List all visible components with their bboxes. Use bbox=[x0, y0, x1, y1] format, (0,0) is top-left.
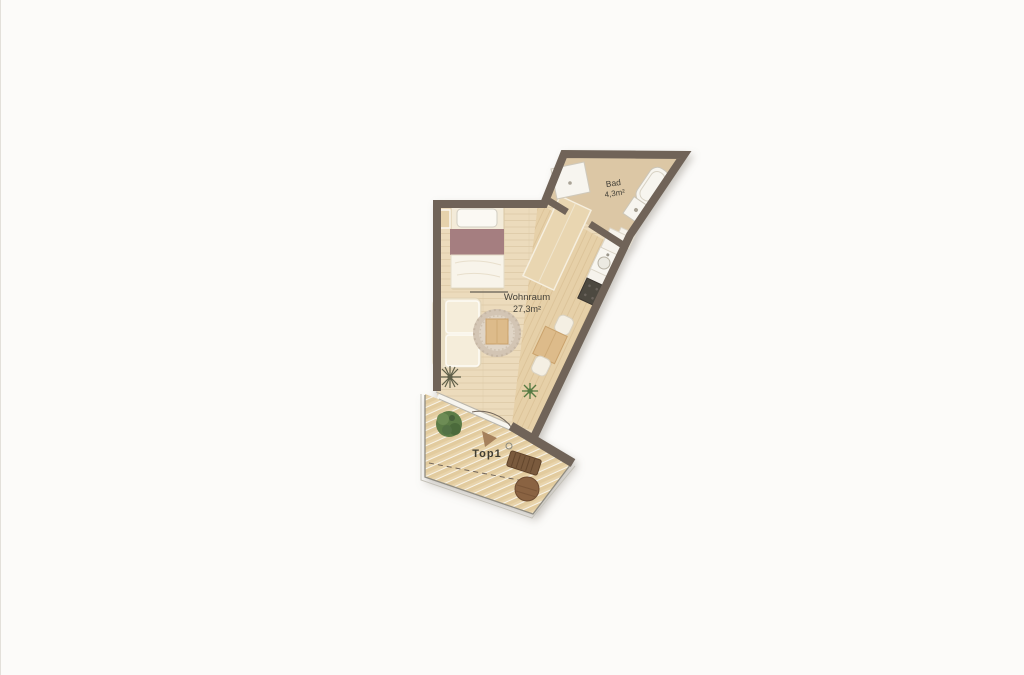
room-label-wohnraum: Wohnraum bbox=[504, 292, 550, 303]
floor-plan: Wohnraum 27,3m² Bad 4,3m² Top1 bbox=[0, 0, 1024, 675]
duvet bbox=[451, 255, 504, 288]
floor-plant-1 bbox=[439, 366, 461, 388]
screenshot-root: { "page": { "background": "#fcfbf9" }, "… bbox=[0, 0, 1024, 675]
pillow bbox=[457, 209, 497, 227]
blanket bbox=[450, 229, 504, 255]
room-label-bad: Bad bbox=[605, 177, 622, 189]
balcony-round-table bbox=[515, 477, 539, 501]
room-area-wohnraum: 27,3m² bbox=[513, 304, 541, 314]
coffee-table bbox=[486, 319, 508, 344]
balcony-bush bbox=[436, 411, 462, 437]
bed bbox=[450, 203, 504, 289]
floor-plant-2 bbox=[522, 383, 538, 399]
floor-plan-body: Wohnraum 27,3m² Bad 4,3m² Top1 bbox=[421, 154, 684, 518]
unit-label: Top1 bbox=[472, 448, 501, 460]
